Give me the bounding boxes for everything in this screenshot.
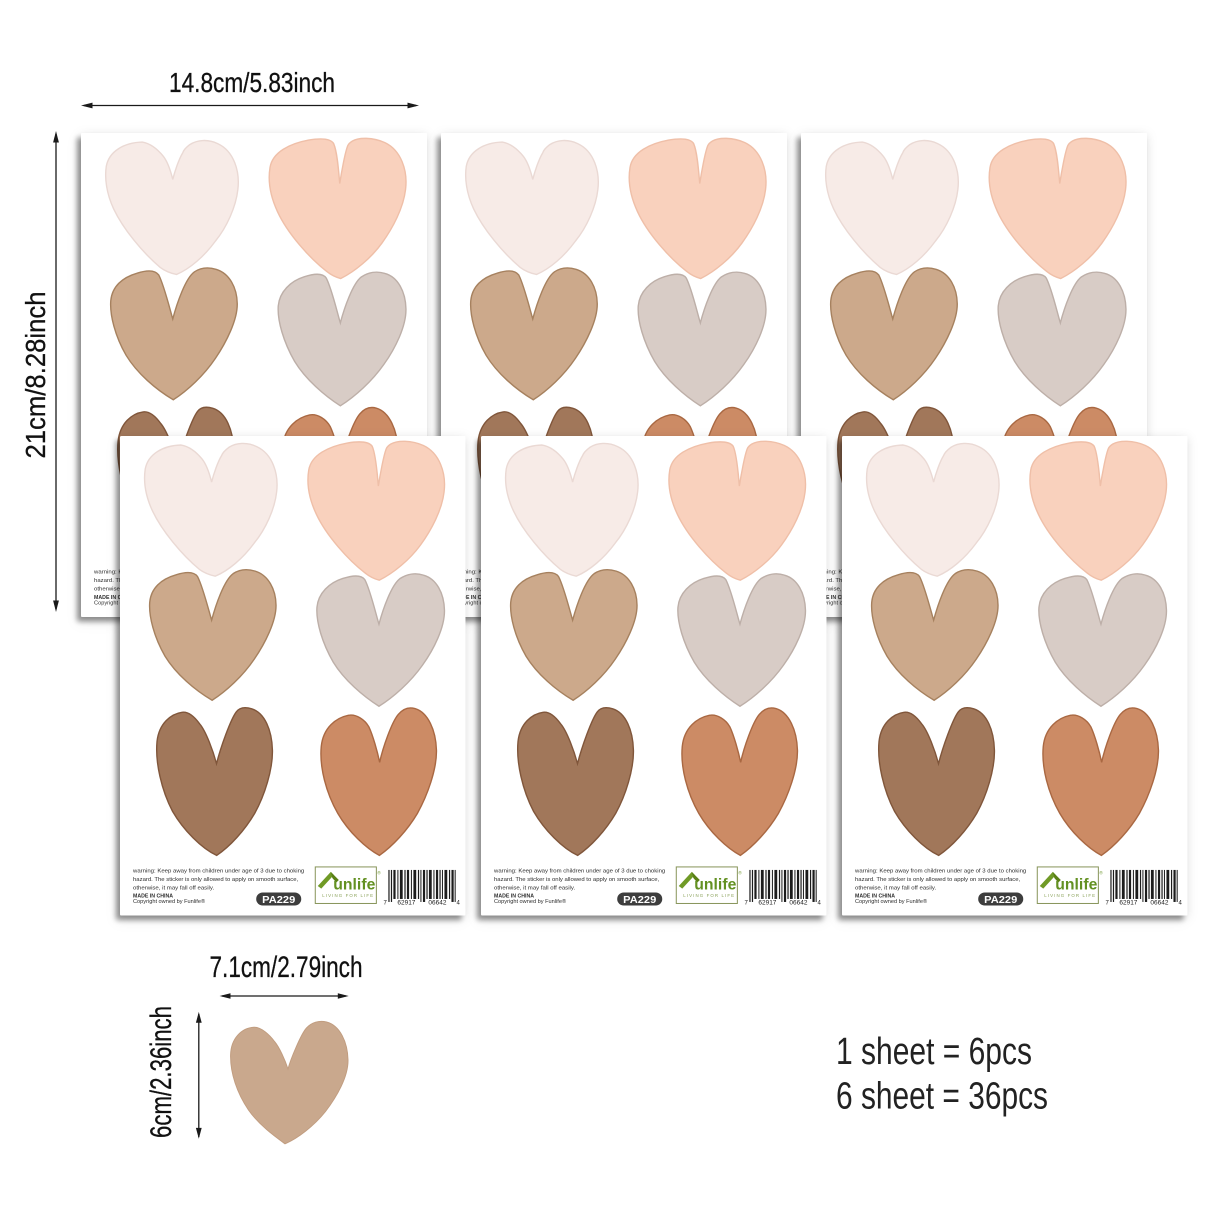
- svg-text:14.8cm/5.83inch: 14.8cm/5.83inch: [169, 67, 335, 98]
- svg-text:7.1cm/2.79inch: 7.1cm/2.79inch: [210, 951, 363, 984]
- svg-text:1 sheet = 6pcs: 1 sheet = 6pcs: [836, 1031, 1032, 1073]
- svg-text:21cm/8.28inch: 21cm/8.28inch: [20, 292, 51, 459]
- svg-text:6cm/2.36inch: 6cm/2.36inch: [145, 1006, 178, 1138]
- svg-text:6 sheet = 36pcs: 6 sheet = 36pcs: [836, 1076, 1048, 1118]
